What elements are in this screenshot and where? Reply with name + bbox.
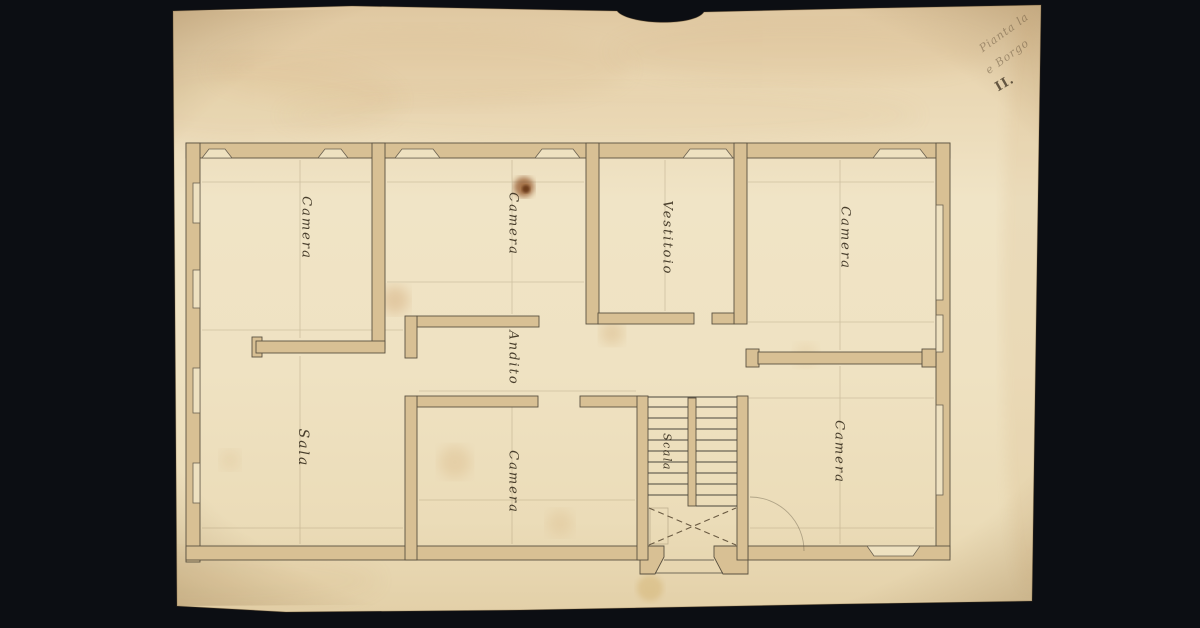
- room-label-camera-se: Camera: [832, 420, 847, 484]
- stair-spine-wall: [688, 398, 696, 506]
- room-label-vestitoio: Vestitoio: [660, 201, 675, 276]
- paper-sheet: [20, 5, 1054, 612]
- wall-exterior-bottom-right: [748, 546, 950, 560]
- room-label-camera-n: Camera: [506, 192, 521, 256]
- floor-plan-drawing: [0, 0, 1200, 628]
- room-label-camera-s: Camera: [506, 450, 521, 514]
- room-label-andito: Andito: [506, 330, 521, 385]
- screenshot-canvas: Camera Camera Vestitoio Camera Andito Sa…: [0, 0, 1200, 628]
- room-label-scala: Scala: [661, 433, 674, 471]
- room-label-camera-nw: Camera: [299, 196, 314, 260]
- room-label-camera-ne: Camera: [838, 206, 853, 270]
- room-label-sala: Sala: [295, 429, 311, 468]
